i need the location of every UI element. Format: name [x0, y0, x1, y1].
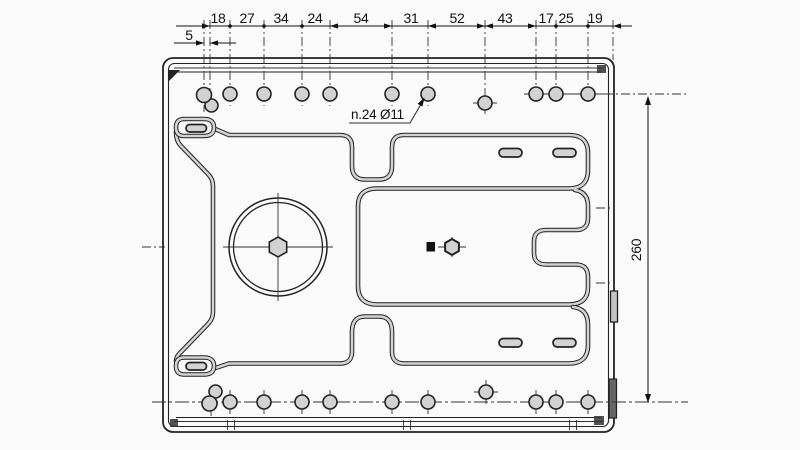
hole-note: n.24 Ø11 [349, 98, 425, 124]
center-square-mark [427, 242, 436, 252]
dim-label-5: 5 [185, 27, 193, 43]
right-edge-tab-upper [611, 291, 618, 322]
slot-top-left [186, 125, 207, 133]
hole-top [295, 87, 309, 101]
slot-upper-right-1 [499, 149, 522, 158]
hole-bottom-offset [479, 385, 493, 399]
dim-label-54: 54 [354, 10, 369, 26]
hole-bottom [223, 395, 237, 409]
bottom-left-corner-mark [170, 419, 178, 427]
hole-note-arrow [418, 98, 425, 107]
center-boss [427, 237, 467, 257]
hole-top [549, 87, 563, 101]
top-right-corner-mark [597, 65, 606, 73]
hole-top [581, 87, 595, 101]
technical-drawing-page: 18 27 34 24 54 31 52 43 17 25 19 5 260 n… [0, 0, 800, 450]
hole-top [529, 87, 543, 101]
hole-bottom [581, 395, 595, 409]
slot-upper-right-2 [553, 149, 576, 158]
dim-label-24: 24 [308, 10, 323, 26]
dim-label-43: 43 [498, 10, 513, 26]
hole-bottom [421, 395, 435, 409]
plate-drawing-svg: 18 27 34 24 54 31 52 43 17 25 19 5 260 n… [0, 0, 800, 450]
height-dimension: 260 [628, 96, 651, 403]
dim-label-31: 31 [404, 10, 419, 26]
slot-lower-right-1 [499, 339, 522, 348]
hole-bottom [549, 395, 563, 409]
hole-top [257, 87, 271, 101]
bottom-right-corner-mark [594, 416, 604, 425]
dim-label-25: 25 [559, 10, 574, 26]
hole-top [223, 87, 237, 101]
keyhole-top-large-lobe [197, 88, 212, 103]
offset-dimension-5: 5 [174, 27, 236, 46]
hole-note-label: n.24 Ø11 [351, 107, 404, 122]
dim-label-27: 27 [240, 10, 255, 26]
right-edge-tab-lower [609, 379, 617, 418]
hole-top [323, 87, 337, 101]
dim-label-52: 52 [450, 10, 465, 26]
center-hex [445, 239, 459, 255]
keyhole-bottom-large-lobe [202, 396, 217, 411]
large-circle [223, 193, 333, 301]
hole-top-offset [478, 96, 492, 110]
hole-bottom [323, 395, 337, 409]
large-circle-center-hex [269, 237, 286, 257]
centerlines [142, 20, 688, 416]
hole-bottom [295, 395, 309, 409]
dim-label-17: 17 [539, 10, 554, 26]
hole-bottom [257, 395, 271, 409]
dim-label-34: 34 [274, 10, 289, 26]
top-dimension-chain: 18 27 34 24 54 31 52 43 17 25 19 [176, 10, 632, 29]
dim-label-19: 19 [588, 10, 603, 26]
dim-label-18: 18 [211, 10, 226, 26]
hole-top [385, 87, 399, 101]
hole-bottom [529, 395, 543, 409]
top-left-corner-mark [168, 70, 180, 82]
offset-hole-ticks [473, 103, 498, 392]
hole-bottom [385, 395, 399, 409]
dim-label-260: 260 [628, 238, 644, 261]
slot-lower-right-2 [553, 339, 576, 348]
slot-bottom-left [186, 363, 207, 371]
